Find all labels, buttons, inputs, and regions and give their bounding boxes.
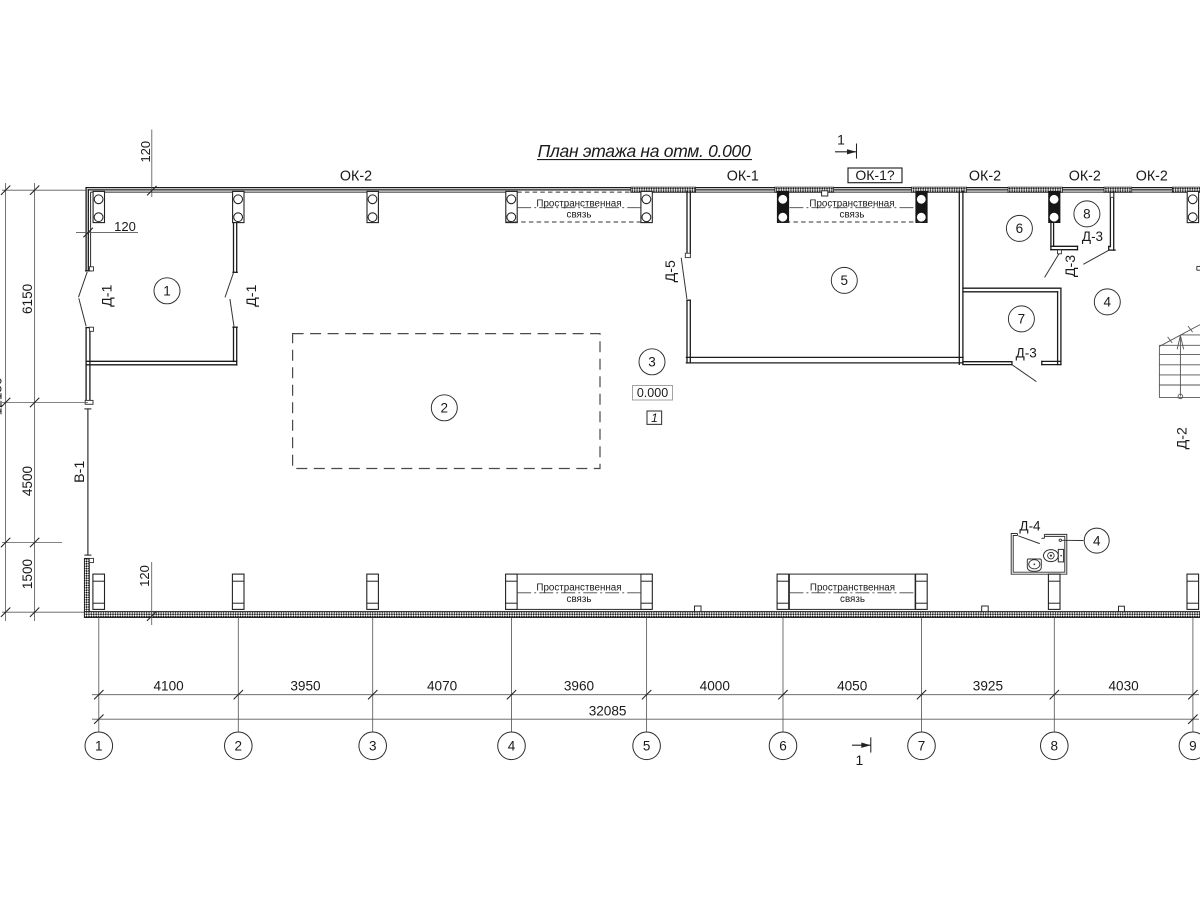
- svg-text:12150: 12150: [0, 377, 4, 415]
- svg-text:Д-5: Д-5: [663, 260, 679, 282]
- svg-text:7: 7: [918, 739, 926, 754]
- svg-text:1: 1: [856, 752, 864, 768]
- svg-text:8: 8: [1083, 207, 1091, 222]
- svg-text:1: 1: [163, 284, 171, 299]
- svg-text:2: 2: [235, 739, 243, 754]
- svg-text:1: 1: [837, 132, 845, 148]
- svg-text:0.000: 0.000: [637, 386, 668, 400]
- svg-text:32085: 32085: [589, 703, 627, 718]
- svg-text:3925: 3925: [973, 679, 1003, 694]
- svg-text:1: 1: [651, 411, 658, 425]
- svg-text:3: 3: [369, 739, 377, 754]
- svg-text:Д-3: Д-3: [1016, 346, 1037, 361]
- svg-text:ОК-2: ОК-2: [340, 169, 372, 185]
- svg-text:6: 6: [779, 739, 787, 754]
- svg-text:4500: 4500: [20, 465, 35, 496]
- svg-text:120: 120: [138, 141, 153, 163]
- svg-text:8: 8: [1051, 739, 1059, 754]
- svg-text:ОК-2: ОК-2: [1069, 169, 1101, 185]
- svg-text:5: 5: [841, 273, 849, 288]
- svg-text:4: 4: [1104, 295, 1112, 310]
- svg-text:4030: 4030: [1108, 679, 1139, 694]
- svg-text:Пространственная: Пространственная: [536, 198, 621, 209]
- svg-text:1500: 1500: [20, 558, 35, 589]
- svg-text:Пространственная: Пространственная: [536, 583, 621, 594]
- svg-text:В-1: В-1: [72, 461, 88, 483]
- svg-text:связь: связь: [567, 209, 592, 220]
- svg-text:9: 9: [1189, 739, 1197, 754]
- svg-text:Д-1: Д-1: [244, 284, 260, 306]
- svg-text:Д-3: Д-3: [1063, 255, 1079, 277]
- svg-text:7: 7: [1018, 312, 1026, 327]
- svg-text:Пространственная: Пространственная: [809, 198, 894, 209]
- svg-text:3950: 3950: [290, 679, 321, 694]
- svg-text:3960: 3960: [564, 679, 595, 694]
- svg-text:ОК-1: ОК-1: [727, 169, 759, 185]
- svg-text:План этажа на отм. 0.000: План этажа на отм. 0.000: [538, 141, 751, 161]
- svg-text:4000: 4000: [700, 679, 731, 694]
- svg-text:Д-1: Д-1: [100, 284, 116, 306]
- svg-text:6150: 6150: [20, 283, 35, 314]
- svg-text:4: 4: [508, 739, 516, 754]
- svg-text:5: 5: [643, 739, 651, 754]
- svg-text:Д-3: Д-3: [1082, 229, 1103, 244]
- svg-text:ОК-1?: ОК-1?: [855, 167, 894, 183]
- svg-text:связь: связь: [567, 594, 592, 605]
- svg-text:Пространственная: Пространственная: [810, 583, 895, 594]
- svg-text:1: 1: [95, 739, 103, 754]
- svg-text:4100: 4100: [153, 679, 184, 694]
- svg-text:ОК-2: ОК-2: [1136, 169, 1168, 185]
- svg-text:Д-4: Д-4: [1019, 518, 1041, 533]
- svg-text:3: 3: [648, 355, 656, 370]
- svg-text:2: 2: [441, 401, 449, 416]
- svg-text:ОК-2: ОК-2: [969, 169, 1001, 185]
- svg-text:4070: 4070: [427, 679, 458, 694]
- svg-text:6: 6: [1016, 221, 1024, 236]
- svg-text:связь: связь: [840, 209, 865, 220]
- svg-text:связь: связь: [840, 594, 865, 605]
- svg-text:Д-2: Д-2: [1175, 427, 1191, 449]
- svg-text:4050: 4050: [837, 679, 868, 694]
- svg-text:4: 4: [1093, 533, 1101, 548]
- svg-text:120: 120: [137, 565, 152, 587]
- svg-text:120: 120: [114, 219, 136, 234]
